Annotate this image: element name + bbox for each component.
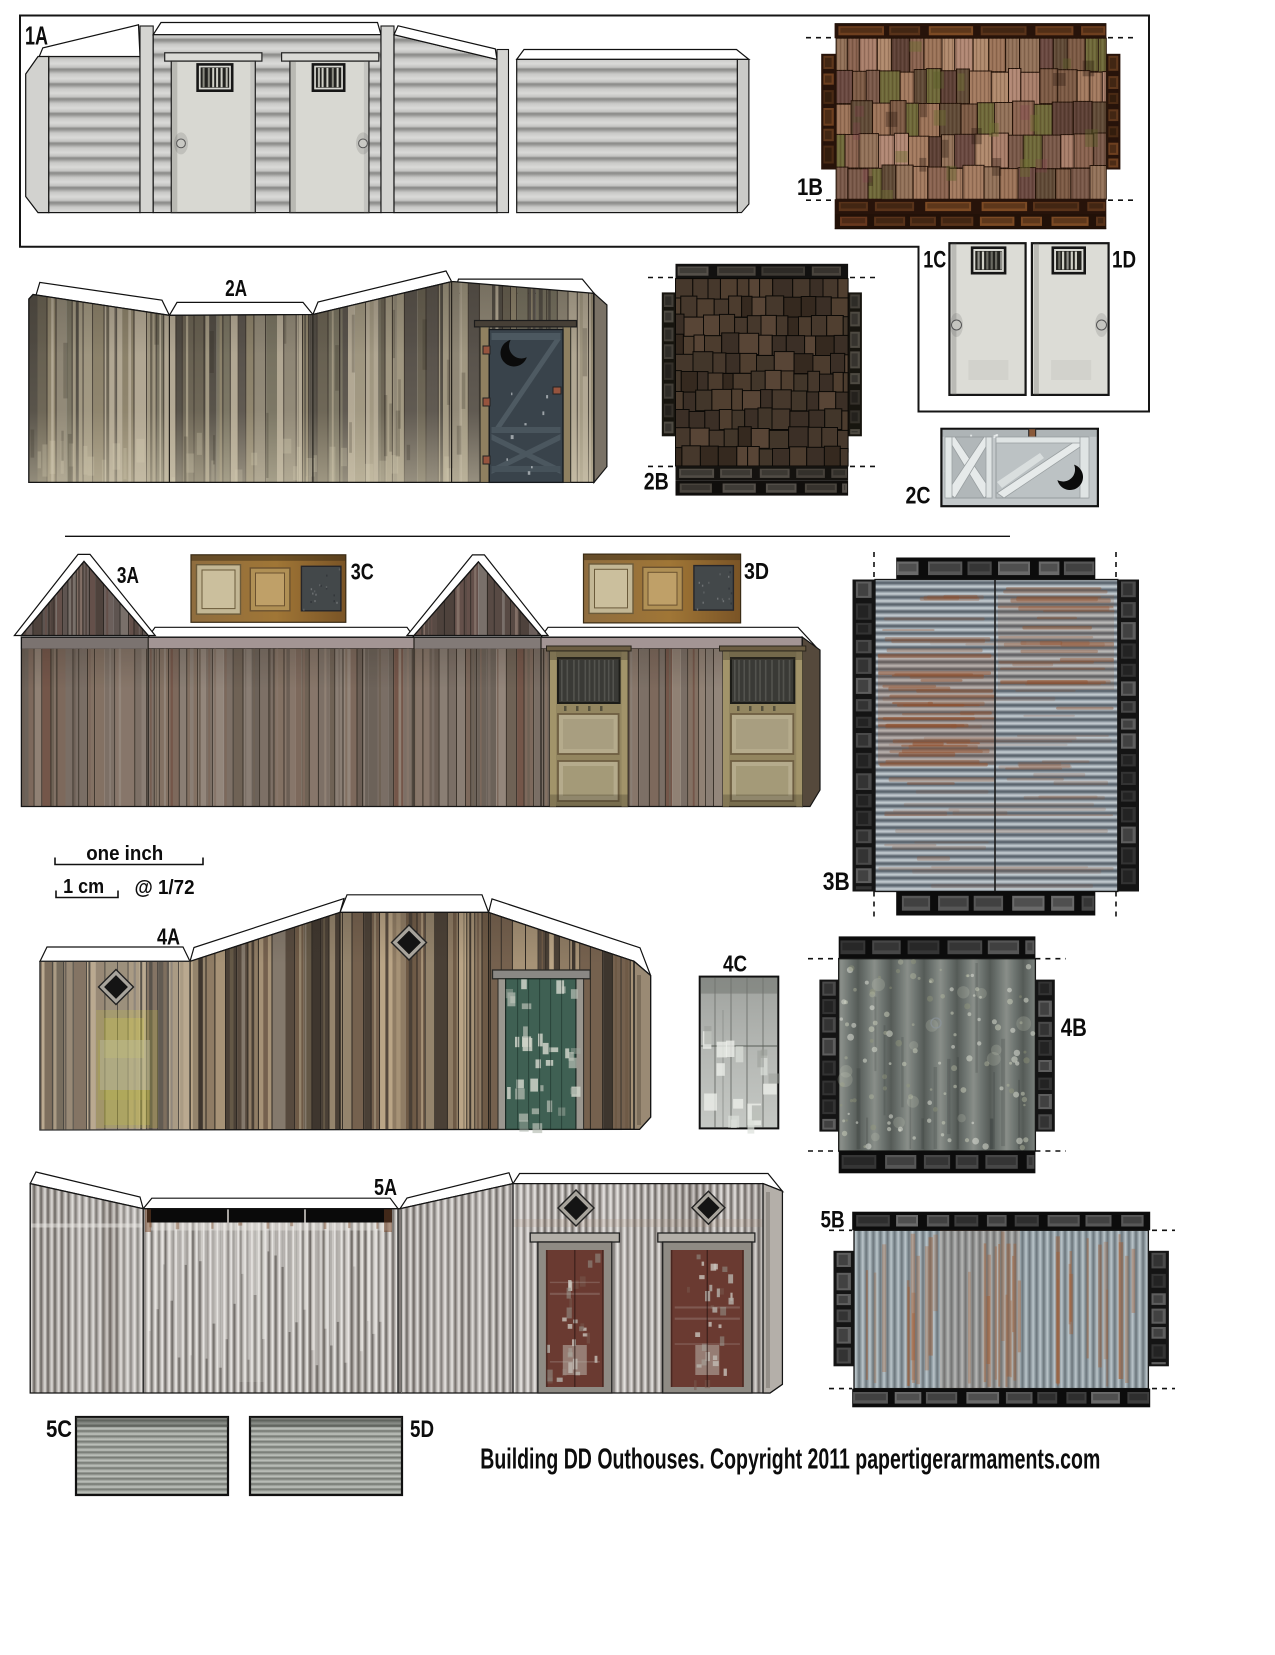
svg-text:Building DD Outhouses. Copyrig: Building DD Outhouses. Copyright 2011 pa… bbox=[480, 1443, 1100, 1475]
svg-text:5B: 5B bbox=[821, 1207, 845, 1234]
svg-text:@ 1/72: @ 1/72 bbox=[135, 877, 195, 899]
svg-text:3A: 3A bbox=[117, 562, 139, 588]
svg-text:1B: 1B bbox=[797, 174, 823, 201]
svg-text:2B: 2B bbox=[644, 468, 669, 495]
svg-text:2C: 2C bbox=[906, 483, 931, 510]
svg-text:one inch: one inch bbox=[86, 843, 163, 865]
svg-text:5D: 5D bbox=[410, 1416, 434, 1443]
svg-text:4A: 4A bbox=[157, 924, 180, 950]
svg-text:3C: 3C bbox=[351, 559, 374, 585]
svg-text:5A: 5A bbox=[374, 1174, 397, 1200]
svg-text:5C: 5C bbox=[46, 1416, 72, 1443]
svg-text:1A: 1A bbox=[25, 21, 48, 51]
svg-text:1 cm: 1 cm bbox=[63, 876, 104, 898]
svg-text:2A: 2A bbox=[225, 275, 247, 301]
svg-text:1D: 1D bbox=[1112, 247, 1136, 274]
svg-text:3B: 3B bbox=[823, 868, 850, 896]
svg-text:1C: 1C bbox=[923, 247, 946, 274]
svg-text:4B: 4B bbox=[1061, 1014, 1087, 1042]
svg-text:3D: 3D bbox=[744, 558, 769, 584]
svg-text:4C: 4C bbox=[723, 951, 747, 977]
